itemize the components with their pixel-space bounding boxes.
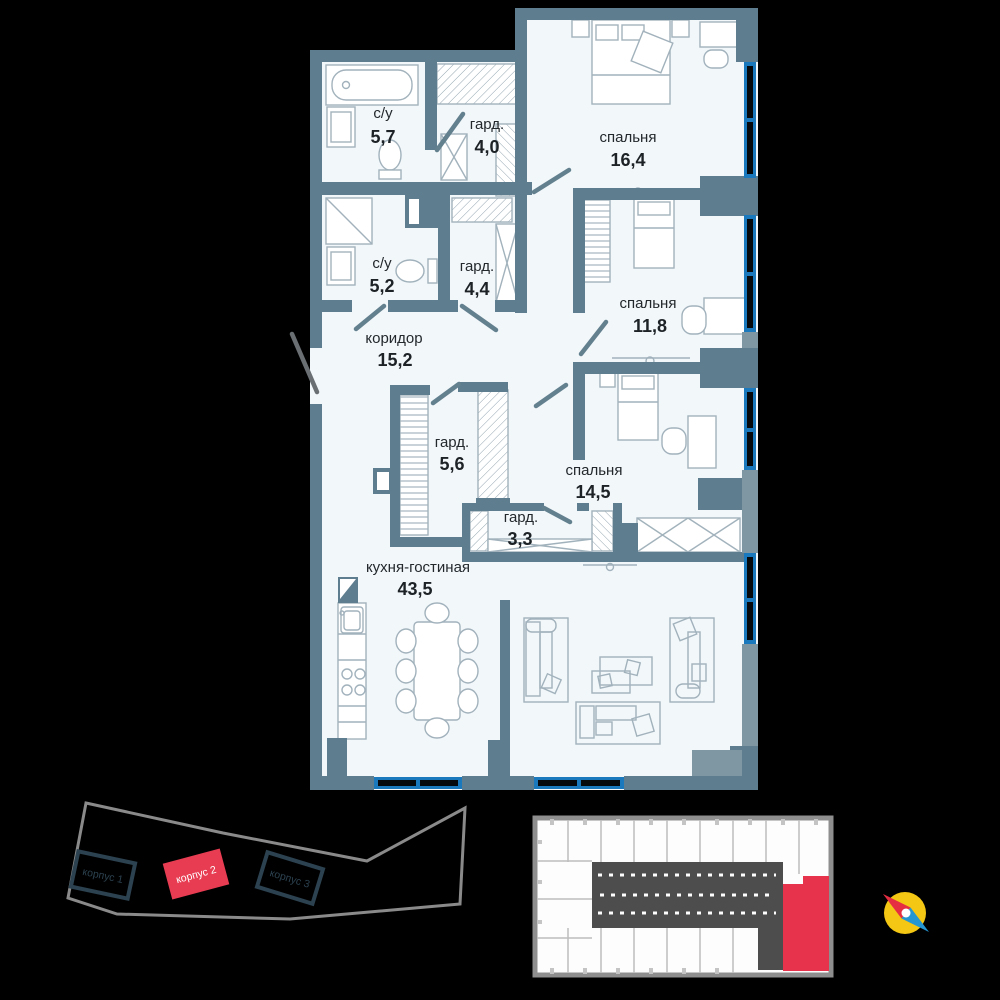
building-label: корпус 1 xyxy=(81,866,124,886)
sink xyxy=(327,247,355,285)
room-area: 5,7 xyxy=(370,127,395,147)
wardrobe-shelves xyxy=(452,198,512,222)
chair xyxy=(682,306,706,334)
building-label: корпус 3 xyxy=(268,867,311,891)
wardrobe-shelves xyxy=(584,200,610,282)
apartment-plan: с/у 5,7 гард. 4,0 спальня 16,4 с/у 5,2 г… xyxy=(292,8,758,790)
room-name: спальня xyxy=(620,295,677,312)
room-label-bathroom-2: с/у 5,2 xyxy=(369,255,394,296)
room-name: гард. xyxy=(460,258,494,275)
wardrobe-shelves xyxy=(478,390,508,500)
building-korpus-2-highlighted[interactable]: корпус 2 xyxy=(163,849,228,899)
room-label-wardrobe-3: гард. 5,6 xyxy=(435,434,469,474)
room-area: 14,5 xyxy=(575,482,610,502)
wardrobe-shelves xyxy=(400,395,428,535)
site-plan: корпус 1 корпус 2 корпус 3 xyxy=(68,803,465,919)
wardrobe-box xyxy=(496,224,518,302)
room-name: спальня xyxy=(566,462,623,479)
room-name: кухня-гостиная xyxy=(366,559,470,576)
room-name: гард. xyxy=(435,434,469,451)
window xyxy=(744,62,756,178)
room-area: 16,4 xyxy=(610,150,645,170)
sink xyxy=(327,107,355,147)
building-korpus-1[interactable]: корпус 1 xyxy=(71,851,135,898)
kitchen-sink xyxy=(340,607,363,633)
wardrobe-band xyxy=(637,518,740,552)
window xyxy=(534,777,624,789)
desk xyxy=(688,416,716,468)
floorplan-page: с/у 5,7 гард. 4,0 спальня 16,4 с/у 5,2 г… xyxy=(0,0,1000,1000)
wardrobe-shelves xyxy=(437,64,521,104)
room-label-wardrobe-1: гард. 4,0 xyxy=(470,116,504,157)
floor-key-plan xyxy=(535,818,831,975)
compass-icon xyxy=(883,892,929,934)
nightstand xyxy=(672,20,689,37)
room-area: 4,4 xyxy=(464,279,489,299)
room-area: 4,0 xyxy=(474,137,499,157)
room-name: гард. xyxy=(504,509,538,526)
window xyxy=(744,553,756,644)
window xyxy=(744,388,756,470)
floorplan-canvas: с/у 5,7 гард. 4,0 спальня 16,4 с/у 5,2 г… xyxy=(0,0,1000,1000)
nightstand xyxy=(600,372,615,387)
room-name: гард. xyxy=(470,116,504,133)
nightstand xyxy=(572,20,589,37)
room-area: 3,3 xyxy=(507,529,532,549)
building-korpus-3[interactable]: корпус 3 xyxy=(257,852,323,903)
room-area: 43,5 xyxy=(397,579,432,599)
room-name: с/у xyxy=(373,105,393,122)
shower xyxy=(326,198,372,244)
room-area: 5,6 xyxy=(439,454,464,474)
key-plan-highlighted-unit[interactable] xyxy=(783,876,829,971)
room-label-wardrobe-2: гард. 4,4 xyxy=(460,258,494,299)
chair xyxy=(704,50,728,68)
desk xyxy=(704,298,746,334)
room-name: коридор xyxy=(365,330,422,347)
chair xyxy=(662,428,686,454)
bathtub xyxy=(326,65,418,105)
wardrobe-bench xyxy=(488,539,592,552)
toilet xyxy=(396,259,437,283)
single-bed xyxy=(618,372,658,440)
room-area: 11,8 xyxy=(633,316,667,336)
apartment-floor xyxy=(310,8,758,790)
room-area: 15,2 xyxy=(377,350,412,370)
room-name: спальня xyxy=(600,129,657,146)
wardrobe-shelves xyxy=(592,511,613,551)
single-bed xyxy=(634,198,674,268)
window xyxy=(374,777,462,789)
room-area: 5,2 xyxy=(369,276,394,296)
room-name: с/у xyxy=(372,255,392,272)
wardrobe-shelves xyxy=(470,511,488,551)
double-bed xyxy=(592,20,673,104)
window xyxy=(744,215,756,332)
